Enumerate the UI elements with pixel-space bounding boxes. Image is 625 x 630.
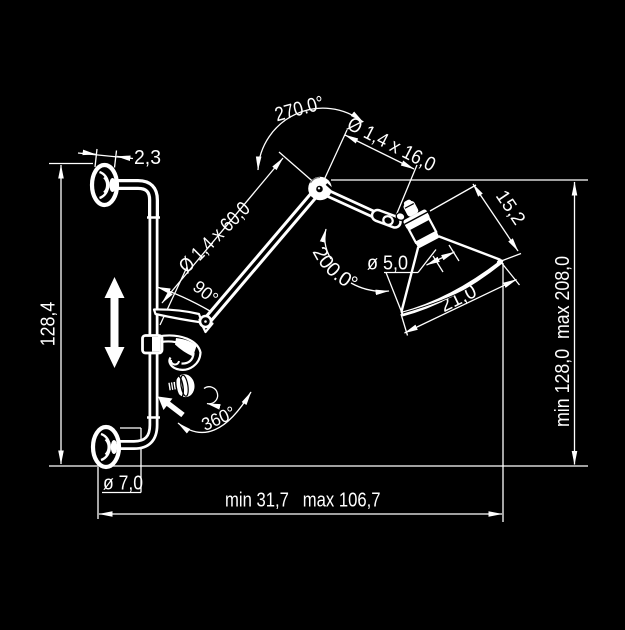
svg-text:min 31,7 max 106,7: min 31,7 max 106,7	[225, 490, 381, 512]
svg-text:min 128,0 max 208,0: min 128,0 max 208,0	[552, 256, 574, 427]
svg-text:ø 5,0: ø 5,0	[367, 253, 408, 275]
svg-text:2,3: 2,3	[134, 147, 161, 169]
svg-text:ø 7,0: ø 7,0	[103, 473, 143, 495]
svg-text:128,4: 128,4	[38, 302, 60, 347]
